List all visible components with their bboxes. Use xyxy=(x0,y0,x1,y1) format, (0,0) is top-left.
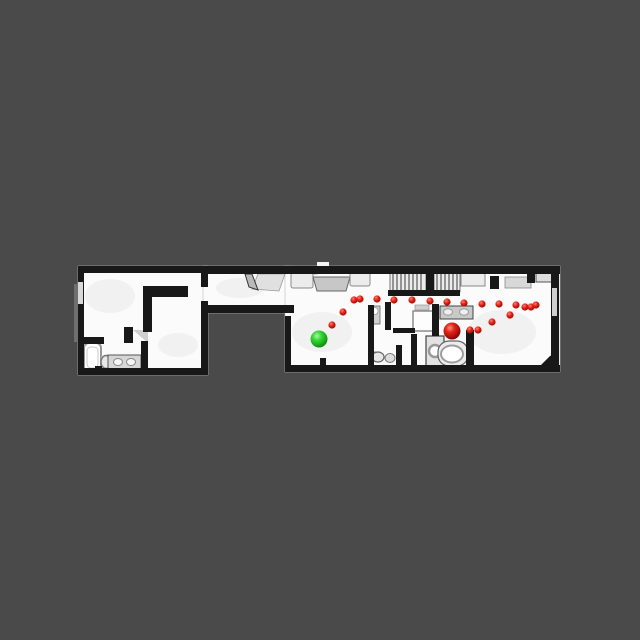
sink-bowl xyxy=(127,359,136,366)
wall-bath-divider-h xyxy=(84,337,104,344)
start-marker xyxy=(311,331,328,348)
sink-bowl xyxy=(114,359,123,366)
waypoint-marker xyxy=(495,300,502,307)
wall-utility-5 xyxy=(396,345,402,367)
sofa-left xyxy=(291,273,313,288)
scan-noise xyxy=(158,333,198,357)
wall-below-stairs xyxy=(388,290,460,296)
wall-top-left xyxy=(78,266,208,273)
waypoint-marker xyxy=(532,301,539,308)
wall-bath-partition xyxy=(141,341,148,373)
waypoint-marker xyxy=(466,326,473,333)
vanity-counter xyxy=(108,355,141,369)
waypoint-marker xyxy=(488,318,495,325)
wall-utility-1 xyxy=(385,302,391,330)
stair-flight-right xyxy=(434,273,460,292)
wall-junction-upper xyxy=(201,268,208,287)
wall-chimney xyxy=(490,276,499,289)
waypoint-marker xyxy=(474,326,481,333)
waypoint-marker xyxy=(512,301,519,308)
cushion xyxy=(460,309,469,315)
wall-utility-4 xyxy=(432,304,439,336)
wall-door-stop xyxy=(320,358,326,366)
cushion xyxy=(444,309,453,315)
wall-bottom-main xyxy=(285,365,560,372)
scan-noise xyxy=(85,279,135,313)
waypoint-marker xyxy=(460,299,467,306)
bathtub-right-inner xyxy=(441,346,463,363)
bidet xyxy=(385,354,395,363)
bathtub-left-inner xyxy=(87,347,98,368)
wall-bath-divider-v xyxy=(124,327,133,343)
waypoint-marker xyxy=(339,308,346,315)
waypoint-marker xyxy=(506,311,513,318)
waypoint-marker xyxy=(478,300,485,307)
wall-interior-v xyxy=(143,286,152,332)
window-right xyxy=(552,288,557,316)
wall-top-main xyxy=(203,266,560,274)
floor-plan-map xyxy=(0,0,640,640)
waypoint-marker xyxy=(408,296,415,303)
waypoint-marker xyxy=(373,295,380,302)
window-left xyxy=(78,282,83,304)
shelf xyxy=(415,305,429,310)
waypoint-marker xyxy=(390,296,397,303)
wall-utility-3 xyxy=(411,334,417,366)
wall-living-right xyxy=(368,305,374,367)
wall-stair-divider xyxy=(426,272,434,292)
waypoint-marker xyxy=(328,321,335,328)
sofa-right xyxy=(350,272,370,286)
goal-marker xyxy=(444,323,461,340)
waypoint-marker xyxy=(350,296,357,303)
wall-right-room-divider xyxy=(466,330,474,368)
wall-corridor-bottom xyxy=(203,305,294,313)
waypoint-marker xyxy=(356,295,363,302)
waypoint-marker xyxy=(443,298,450,305)
table-center xyxy=(313,277,350,291)
scan-fringe xyxy=(74,284,78,342)
scene-viewport xyxy=(0,0,640,640)
wall-stub xyxy=(527,272,535,283)
waypoint-marker xyxy=(426,297,433,304)
wall-utility-2 xyxy=(393,328,415,333)
wall-living-left xyxy=(285,316,291,372)
